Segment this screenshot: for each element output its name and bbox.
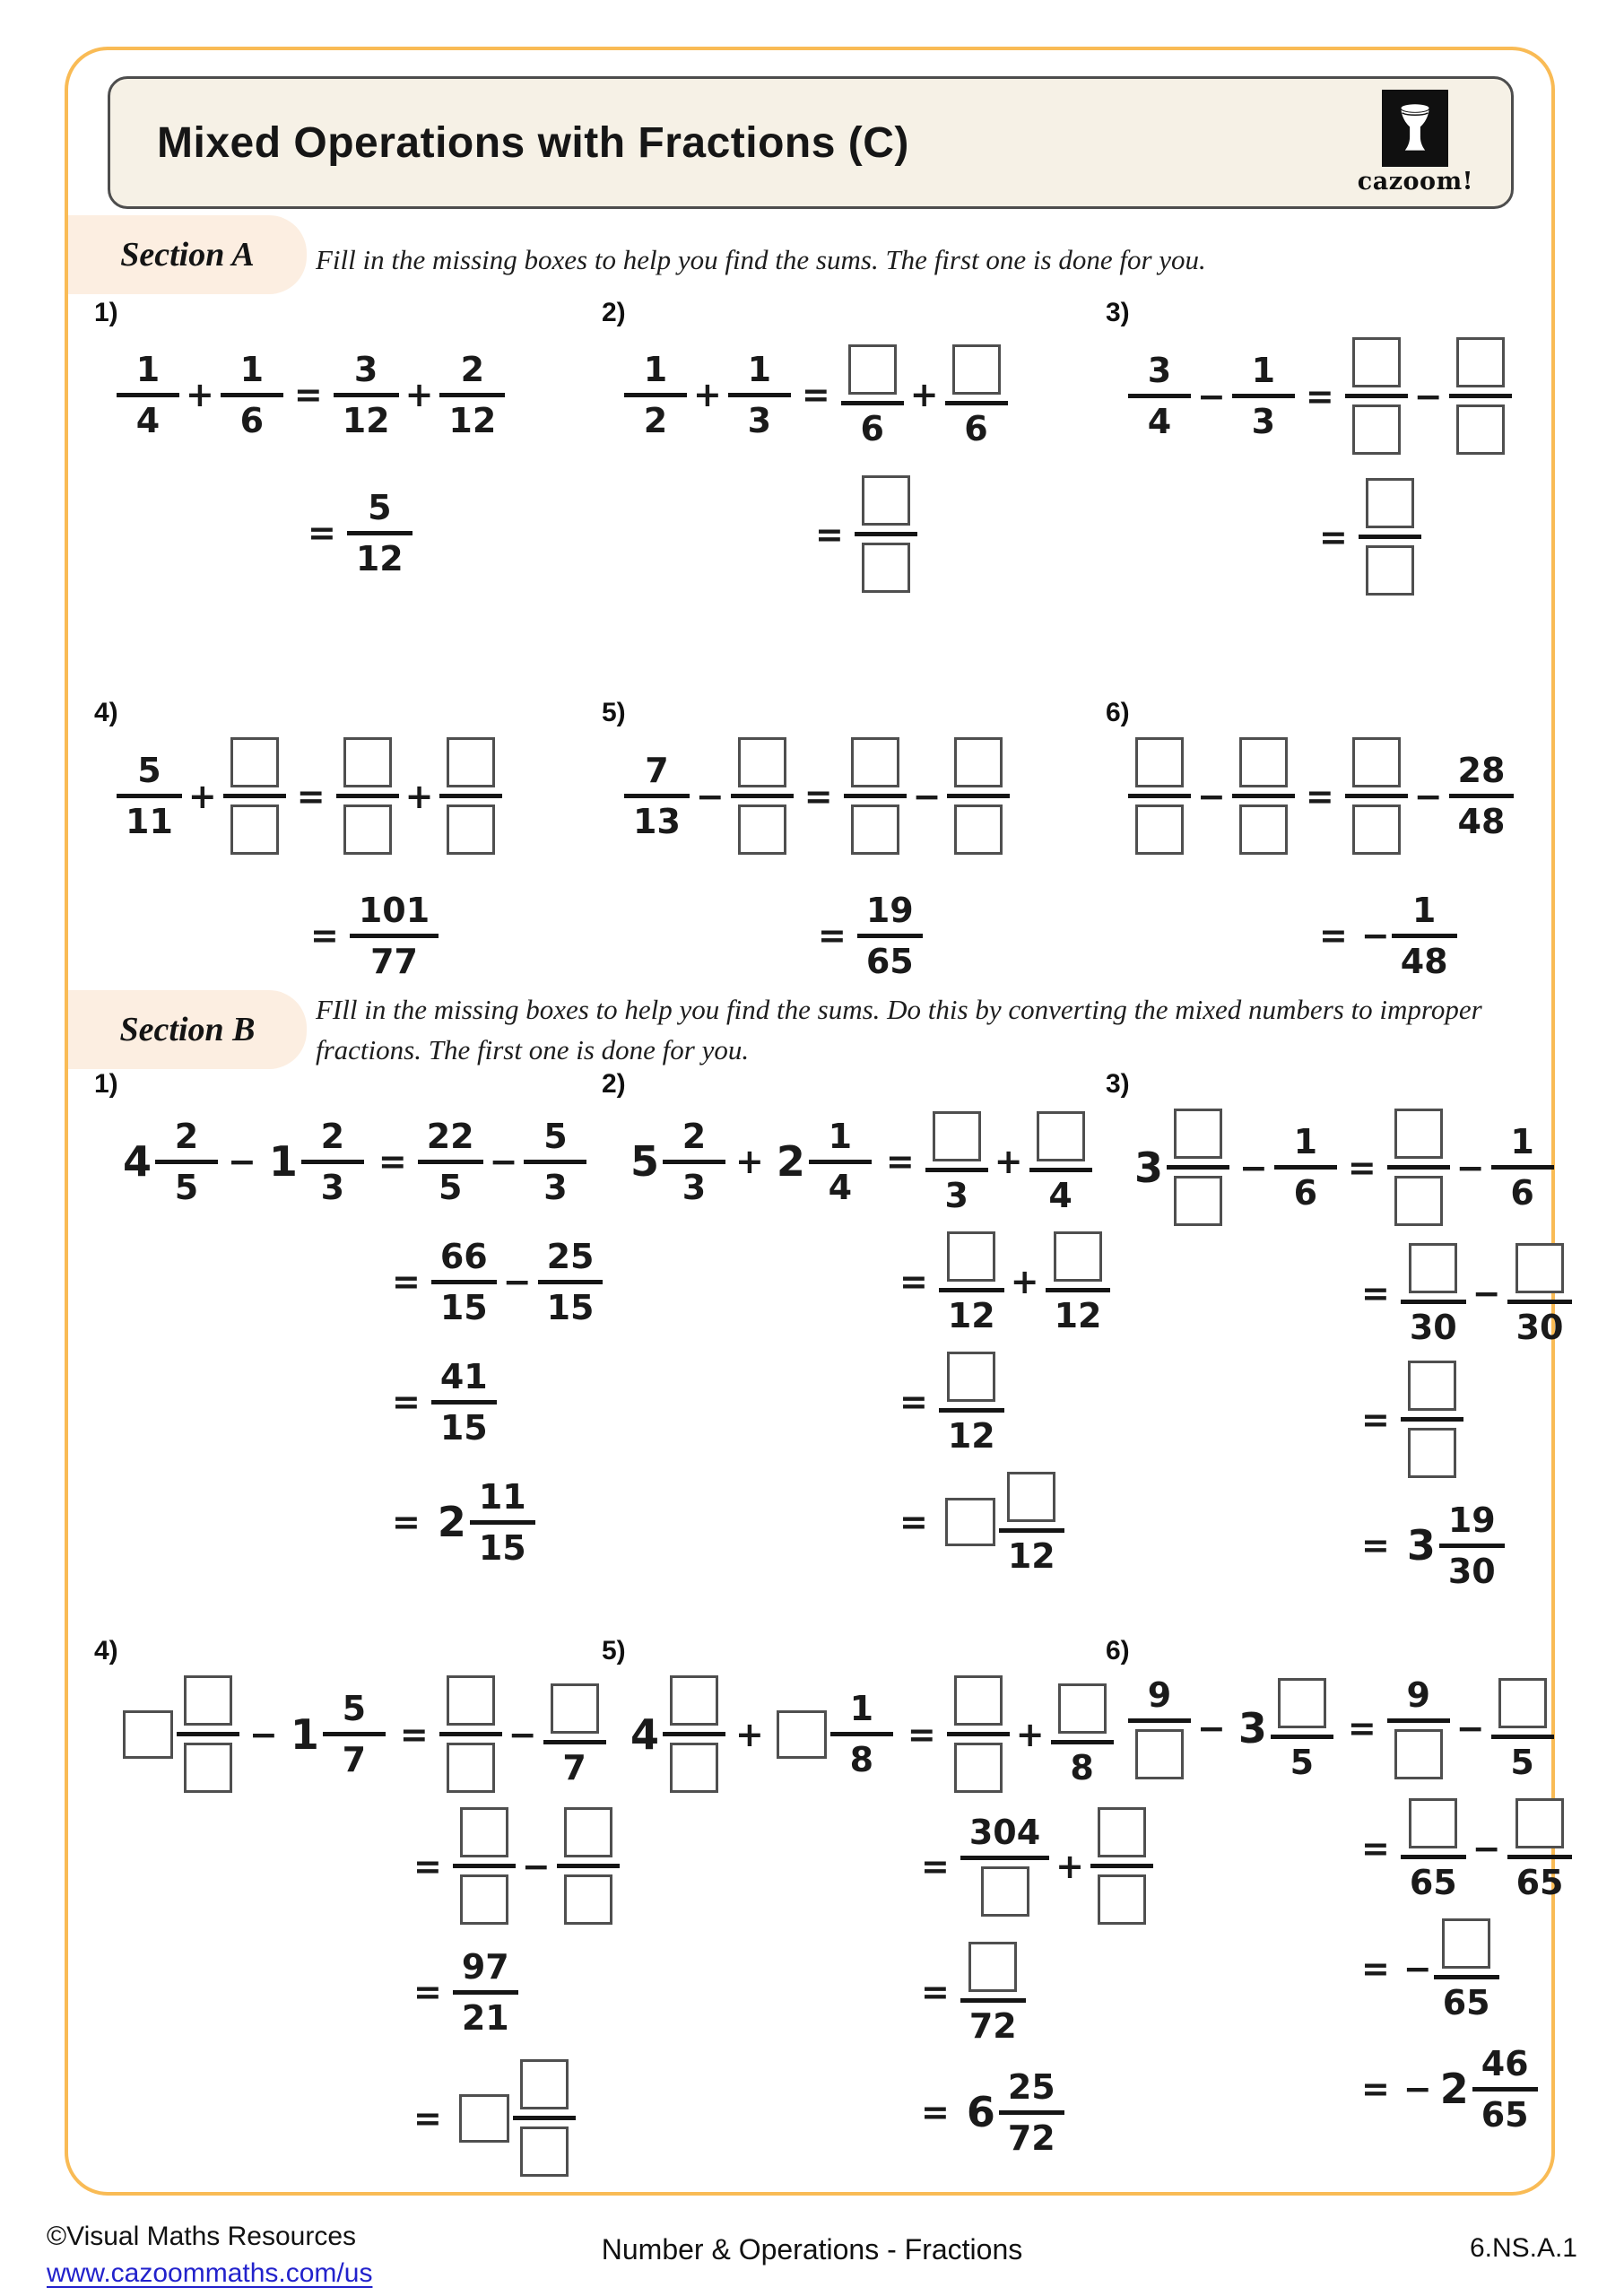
fraction-value: 15 [438,1291,491,1325]
fraction: 25 [161,1119,212,1205]
fraction-value: 1 [1507,1125,1536,1159]
answer-box [1366,478,1414,528]
fraction-value: 6 [1507,1176,1536,1210]
fraction-bar [939,1288,1004,1292]
fraction-bar [809,1160,872,1164]
answer-box [1135,804,1184,855]
minus-operator: − [1472,1831,1501,1865]
fraction-bar [155,1160,218,1164]
problem: 5)4+18=+8=304+=72=62572 [602,1636,1106,2191]
fraction-value: 77 [368,944,421,978]
fraction-value: 66 [438,1239,491,1274]
fraction-value: 6 [961,412,990,446]
plus-operator: + [1055,1849,1084,1883]
equals-sign: = [1361,2072,1390,2106]
fraction-bar [1345,794,1408,798]
plus-operator: + [186,378,214,412]
fraction-value: 5 [541,1119,569,1153]
problem-number: 6) [1106,1636,1540,1666]
fraction-value: 19 [864,893,916,927]
equation-line: 713−=− [602,737,1106,855]
page-title: Mixed Operations with Fractions (C) [157,118,909,168]
plus-operator: + [1011,1265,1039,1299]
fraction: 13 [734,352,785,438]
mixed-number: 35 [1238,1678,1331,1779]
fraction: 1930 [1446,1503,1498,1588]
whole-number [123,1710,173,1759]
fraction: 14 [815,1119,865,1205]
fraction-value: 65 [1479,2098,1532,2132]
problem: 3)3−16=−16=30−30==31930 [1106,1069,1540,1613]
answer-box [1174,1176,1222,1226]
fraction-value: 48 [1398,944,1451,978]
answer-box [968,1942,1017,1992]
fraction: 9 [1394,1678,1444,1779]
problem: 5)713−=−=1965 [602,698,1106,1016]
fraction: 57 [329,1692,379,1777]
fraction-value: 4 [1145,404,1174,439]
fraction-value: 3 [745,404,774,438]
answer-box [1456,404,1505,455]
answer-box [1135,1729,1184,1779]
fraction: 512 [353,491,406,576]
answer-box [1054,1231,1102,1282]
answer-box [777,1710,827,1759]
fraction-value: 65 [1407,1865,1460,1900]
answer-box [1352,404,1401,455]
fraction-bar [1392,934,1457,938]
answer-box [460,1874,508,1925]
section-a-label: Section A [68,215,307,294]
fraction: 9721 [459,1950,512,2035]
fraction-bar [524,1160,586,1164]
minus-operator: − [1472,1276,1501,1310]
fraction-bar [439,393,505,397]
equation-line: = [602,475,1106,593]
equals-sign: = [1319,520,1348,554]
fraction-bar [844,794,907,798]
problem-number: 5) [602,698,1106,728]
fraction-value: 7 [340,1743,369,1777]
fraction-value: 101 [356,893,432,927]
fraction-bar [1491,1735,1554,1739]
whole-number: 1 [291,1714,319,1755]
fraction-value: 15 [544,1291,597,1325]
equals-sign: = [294,378,323,412]
fraction: 13 [1238,353,1289,439]
equals-sign: = [378,1144,407,1178]
fraction: 4665 [1479,2047,1532,2132]
answer-box [954,1743,1003,1793]
answer-box [1394,1176,1443,1226]
equation-line: =62572 [602,2059,1106,2165]
fraction-value: 3 [1249,404,1278,439]
problem: 1)14+16=312+212=512 [94,298,602,619]
mixed-number [123,1675,237,1793]
fraction: 3 [932,1111,982,1213]
fraction: 312 [340,352,393,438]
fraction-bar [323,1732,386,1736]
fraction-value: 65 [864,944,916,978]
fraction [1394,1109,1444,1226]
fraction-value: 41 [438,1360,491,1394]
answer-box [123,1710,173,1759]
minus-operator: − [508,1718,537,1752]
answer-box [1394,1729,1443,1779]
minus-operator: − [522,1849,551,1883]
equation-line: −=−2848 [1106,737,1540,855]
fraction: 34 [1134,353,1185,439]
fraction-value: 6 [1291,1176,1320,1210]
minus-operator: − [249,1718,278,1752]
fraction: 23 [308,1119,358,1205]
whole-number: 5 [630,1141,659,1182]
minus-operator: − [1414,779,1443,813]
equals-sign: = [297,779,326,813]
answer-box [1352,337,1401,387]
fraction-value: 30 [1514,1310,1567,1344]
equals-sign: = [1348,1151,1376,1185]
problem-number: 3) [1106,1069,1540,1100]
equation-line: =31930 [1106,1492,1540,1598]
fraction-bar [945,401,1008,405]
problem: 4)511+=+=10177 [94,698,602,1016]
fraction-bar [1401,1417,1463,1422]
fraction-value: 72 [1005,2121,1058,2155]
answer-box [1239,804,1288,855]
fraction-value: 11 [123,804,176,839]
answer-box [1394,1109,1443,1159]
equation-line: =30−30 [1106,1240,1540,1346]
fraction-value: 15 [438,1411,491,1445]
fraction: 12 [1005,1472,1058,1573]
fraction-value: 304 [967,1815,1043,1849]
problem: 2)12+13=6+6= [602,298,1106,619]
fraction [446,1675,496,1793]
fraction [1407,1361,1457,1478]
equation-line: =6615−2515 [94,1229,602,1335]
fraction-bar [543,1740,606,1744]
fraction [519,2059,569,2177]
fraction-value: 1 [134,352,162,387]
answer-box [459,2094,509,2143]
equals-sign: = [1361,1403,1390,1437]
fraction: 12 [945,1352,998,1453]
equation-line: =9721 [94,1939,602,2045]
answer-box [1135,737,1184,787]
fraction: 8 [1057,1683,1107,1785]
fraction [1455,337,1506,455]
fraction-bar [947,794,1010,798]
fraction-bar [830,1732,893,1736]
whole-number [777,1710,827,1759]
equals-sign: = [308,516,336,550]
fraction-bar [960,1856,1049,1860]
fraction-bar [624,794,690,798]
brand-name: cazoom! [1358,168,1473,196]
fraction: 30 [1407,1243,1460,1344]
fraction-value: 48 [1455,804,1508,839]
fraction-value: 25 [1005,2070,1058,2104]
fraction-bar [1167,1165,1229,1170]
fraction-bar [336,794,399,798]
answer-box [1409,1798,1457,1848]
fraction-bar [221,393,283,397]
equals-sign: = [392,1265,421,1299]
fraction [446,737,496,855]
fraction-bar [1507,1855,1573,1859]
fraction: 4115 [438,1360,491,1445]
answer-box [447,737,495,787]
fraction-bar [1128,794,1191,798]
fraction-bar [1046,1288,1111,1292]
mixed-number: 21115 [438,1480,533,1565]
mixed-number: 214 [777,1119,869,1205]
whole-number: 3 [1238,1708,1267,1749]
mixed-number: 425 [123,1119,215,1205]
problem-number: 4) [94,698,602,728]
equation-line: =12 [602,1469,1106,1575]
fraction-value: 7 [642,753,671,787]
whole-number: 1 [269,1141,298,1182]
fraction-value: 9 [1145,1678,1174,1712]
fraction-value: 22 [424,1119,477,1153]
problem: 6)9−35=9−5=65−65=−65=−24665 [1106,1636,1540,2191]
equals-sign: = [1361,1276,1390,1310]
answer-box [947,1231,995,1282]
equation-line: 12+13=6+6 [602,337,1106,452]
fraction: 30 [1514,1243,1567,1344]
fraction-bar [1387,1718,1450,1723]
problem-number: 1) [94,298,602,328]
fraction-bar [1449,394,1512,398]
website-link[interactable]: www.cazoommaths.com/us [47,2258,372,2288]
answer-box [343,804,392,855]
fraction-bar [1128,1718,1191,1723]
equals-sign: = [1306,779,1334,813]
equation-line: 34−13=− [1106,337,1540,455]
fraction-value: 97 [459,1950,512,1984]
fraction: 511 [123,753,176,839]
fraction-bar [347,531,413,535]
fraction: 5 [1277,1678,1327,1779]
equals-sign: = [392,1505,421,1539]
fraction [737,737,787,855]
fraction: 6615 [438,1239,491,1325]
fraction [1238,737,1289,855]
fraction-bar [624,393,687,397]
answer-box [447,804,495,855]
fraction-bar [731,794,794,798]
answer-box [851,737,899,787]
fraction: 6 [951,344,1002,446]
equation-line: =65−65 [1106,1796,1540,1901]
fraction-bar [1507,1300,1573,1304]
fraction-value: 1 [1249,353,1278,387]
fraction: 12 [945,1231,998,1333]
equals-sign: = [413,1849,442,1883]
equation-line: 425−123=225−53 [94,1109,602,1214]
fraction-value: 30 [1446,1554,1498,1588]
fraction-value: 5 [340,1692,369,1726]
page-footer: ©Visual Maths Resources www.cazoommaths.… [47,2219,1577,2292]
fraction: 72 [967,1942,1020,2043]
whole-number: 3 [1407,1525,1436,1566]
fraction: 65 [1440,1918,1493,2020]
copyright-text: ©Visual Maths Resources [47,2219,432,2256]
mixed-number: 18 [777,1692,890,1777]
answer-box [460,1807,508,1857]
answer-box [1408,1428,1456,1478]
minus-operator: − [1239,1151,1268,1185]
problem-number: 2) [602,1069,1106,1100]
fraction: 1965 [864,893,916,978]
answer-box [230,737,279,787]
answer-box [851,804,899,855]
mixed-number: 24665 [1440,2047,1535,2132]
plus-operator: + [405,779,434,813]
answer-box [1239,737,1288,787]
fraction-value: 9 [1403,1678,1432,1712]
fraction-value: 3 [352,352,380,387]
fraction: 23 [669,1119,719,1205]
problem: 4)−157=−7=−=9721= [94,1636,602,2191]
answer-box [230,804,279,855]
fraction-value: 12 [446,404,499,438]
answer-box [1442,1918,1490,1969]
mixed-number: 12 [945,1472,1062,1573]
fraction-bar [1271,1735,1333,1739]
cazoom-logo: cazoom! [1358,90,1473,196]
fraction [953,1675,1003,1793]
equals-sign: = [1319,918,1348,952]
fraction-value: 2 [458,352,487,387]
fraction: 4 [1036,1111,1086,1213]
plus-operator: + [405,378,434,412]
fraction-value: 1 [847,1692,876,1726]
fraction-bar [663,1732,725,1736]
answer-box [520,2126,569,2177]
equals-sign: = [413,1975,442,2009]
answer-box [1352,804,1401,855]
mixed-number: 4 [630,1675,723,1793]
fraction-bar [1387,1165,1450,1170]
fraction: 225 [424,1119,477,1205]
problem: 3)34−13=−= [1106,298,1540,619]
fraction: 5 [1498,1678,1548,1779]
fraction-value: 5 [172,1170,201,1205]
fraction-bar [1232,394,1295,398]
answer-box [520,2059,569,2109]
standard-code: 6.NS.A.1 [1192,2233,1577,2264]
fraction-bar [301,1160,364,1164]
minus-operator: − [228,1144,256,1178]
minus-operator: − [1197,379,1226,413]
mixed-number: 123 [269,1119,361,1205]
answer-box [1456,337,1505,387]
equation-line: −157=−7 [94,1675,602,1793]
fraction-value: 5 [1288,1745,1316,1779]
fraction-bar [418,1160,483,1164]
equation-line: =− [94,1807,602,1925]
fraction-bar [925,1168,988,1172]
fraction-bar [470,1520,535,1525]
answer-box [954,804,1003,855]
answer-box [1058,1683,1107,1734]
fraction-value: 2 [318,1119,347,1153]
fraction-bar [663,1160,725,1164]
whole-number [945,1498,995,1546]
fraction-bar [1051,1740,1114,1744]
problem: 1)425−123=225−53=6615−2515=4115=21115 [94,1069,602,1613]
mixed-number: 31930 [1407,1503,1502,1588]
equation-line: =10177 [94,878,602,993]
answer-box [1366,545,1414,596]
fraction-value: 2 [641,404,670,438]
fraction-bar [1439,1544,1505,1548]
fraction-bar [855,532,917,536]
plus-operator: + [693,378,722,412]
minus-operator: − [1456,1711,1485,1745]
fraction-bar [1449,794,1515,798]
section-b-grid: 1)425−123=225−53=6615−2515=4115=211152)5… [94,1069,1540,2191]
answer-box [670,1675,718,1726]
equals-sign: = [818,918,847,952]
fraction [953,737,1003,855]
drum-icon [1382,90,1448,167]
fraction: 12 [1052,1231,1105,1333]
problem-number: 4) [94,1636,602,1666]
fraction-bar [1359,535,1421,539]
fraction-bar [960,1998,1026,2003]
fraction: 65 [1407,1798,1460,1900]
equals-sign: = [886,1144,915,1178]
copyright-block: ©Visual Maths Resources www.cazoommaths.… [47,2219,432,2292]
whole-number: 2 [438,1501,466,1543]
equation-line: =21115 [94,1469,602,1575]
fraction-value: 72 [967,2009,1020,2043]
plus-operator: + [735,1144,764,1178]
fraction: 16 [1498,1125,1548,1210]
equation-line: 523+214=3+4 [602,1109,1106,1214]
fraction-value: 2 [680,1119,708,1153]
fraction-value: 3 [680,1170,708,1205]
fraction [343,737,393,855]
fraction: 16 [227,352,277,438]
whole-number: 2 [777,1141,805,1182]
fraction-value: 5 [1507,1745,1536,1779]
fraction-bar [1345,394,1408,398]
whole-number: 6 [967,2092,995,2133]
fraction-value: 6 [857,412,886,446]
answer-box [862,475,910,526]
equals-sign: = [921,2095,950,2129]
fraction: 148 [1398,893,1451,978]
answer-box [1515,1243,1564,1293]
answer-box [184,1675,232,1726]
equation-line: =4115 [94,1349,602,1455]
answer-box [952,344,1001,395]
fraction: 10177 [356,893,432,978]
fraction [1351,337,1402,455]
fraction-bar [431,1400,497,1405]
fraction-value: 2 [172,1119,201,1153]
fraction-value: 3 [942,1178,970,1213]
fraction-value: 25 [544,1239,597,1274]
fraction-value: 3 [541,1170,569,1205]
fraction-value: 21 [459,2001,512,2035]
equation-line: = [94,2059,602,2177]
